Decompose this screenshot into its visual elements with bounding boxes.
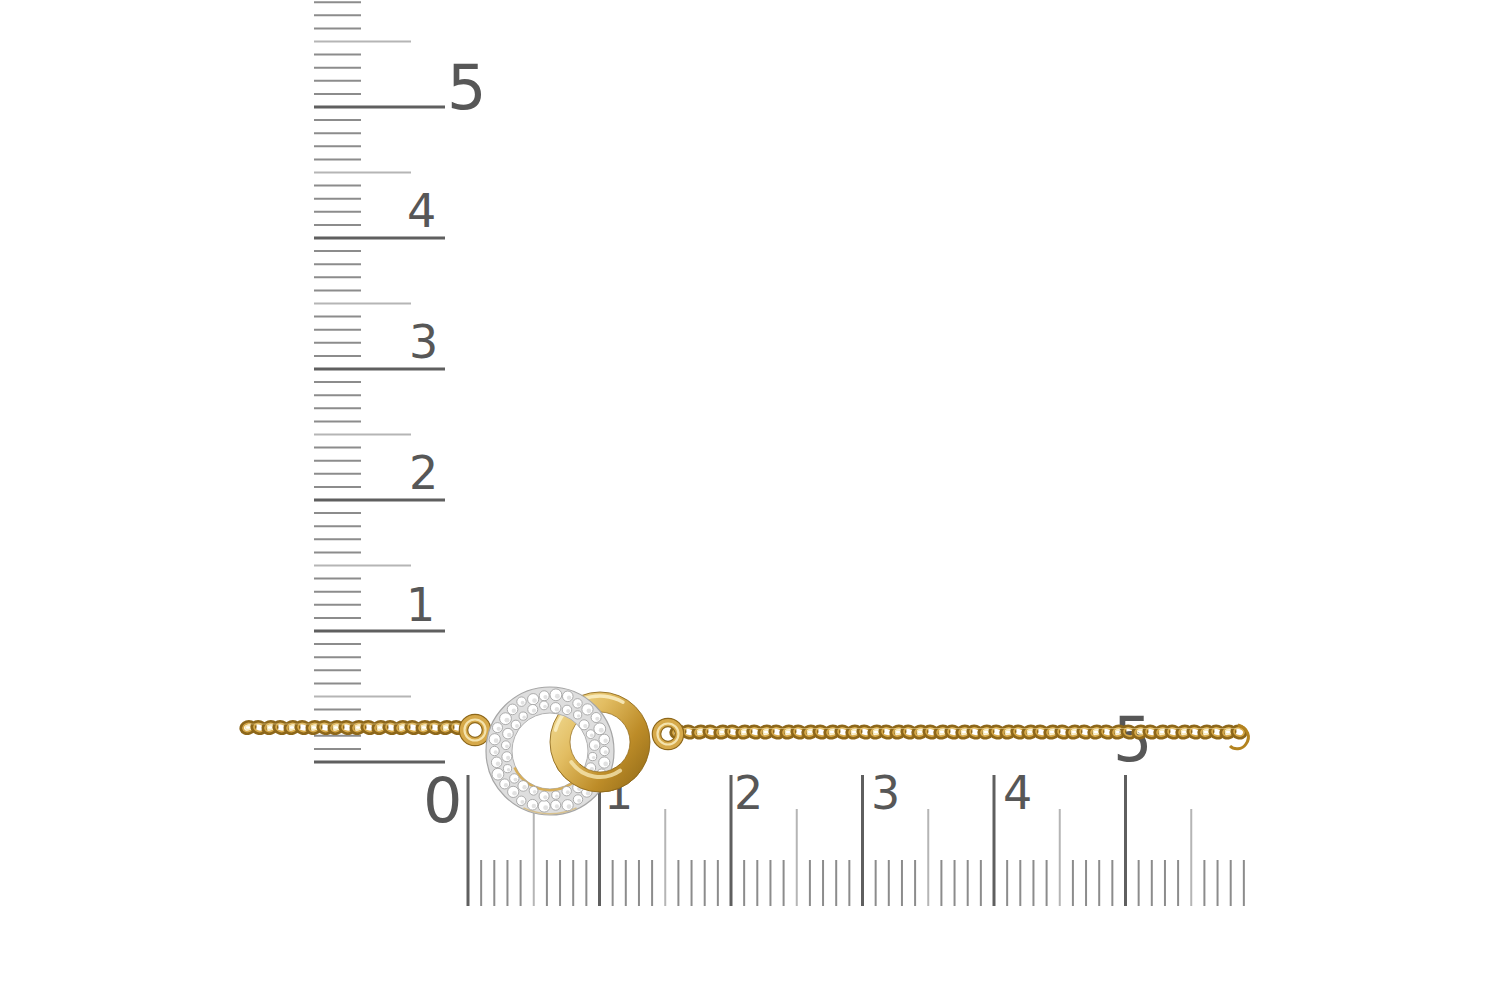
horizontal-ruler-label-3: 3	[871, 766, 900, 820]
vertical-ruler-label-5: 5	[447, 51, 486, 124]
vertical-ruler-label-4: 4	[407, 184, 436, 238]
horizontal-ruler-label-0: 0	[423, 764, 462, 837]
product-photo: 54321 012345	[0, 0, 1500, 1000]
horizontal-ruler-label-2: 2	[734, 766, 763, 820]
vertical-ruler-label-2: 2	[409, 446, 438, 500]
horizontal-ruler-label-4: 4	[1003, 766, 1032, 820]
jump-ring-left	[459, 714, 490, 745]
vertical-ruler-label-1: 1	[406, 578, 435, 632]
vertical-ruler: 54321	[314, 2, 486, 762]
vertical-ruler-label-3: 3	[409, 315, 438, 369]
diamond-pave-circle	[486, 687, 614, 815]
gold-chain	[240, 720, 1249, 749]
jump-ring-right	[652, 718, 683, 749]
interlocking-circles-charm	[459, 687, 683, 815]
horizontal-ruler-label-5: 5	[1113, 703, 1152, 776]
jewelry-measurement-photo: 54321 012345	[0, 0, 1500, 1000]
